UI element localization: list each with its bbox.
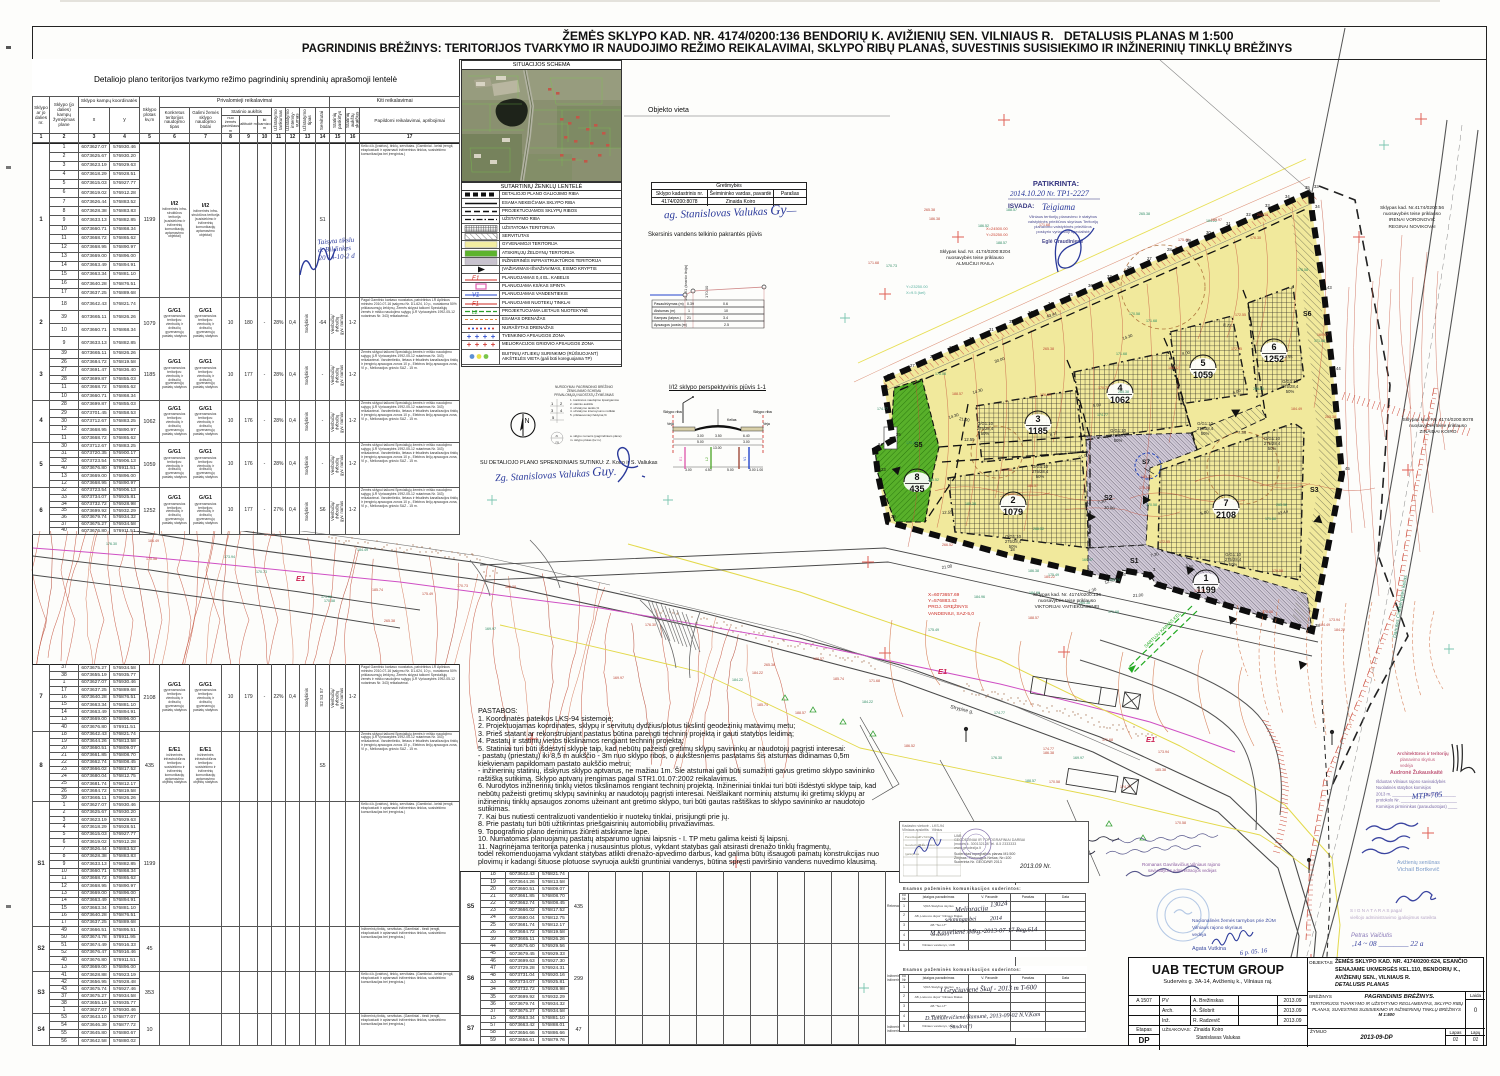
- svg-text:Kampas (laipsn.): Kampas (laipsn.): [654, 316, 681, 320]
- svg-text:a: a: [556, 433, 559, 438]
- svg-text:3.00 1.00: 3.00 1.00: [749, 468, 763, 472]
- svg-text:L2: L2: [705, 457, 709, 461]
- svg-text:2.5: 2.5: [724, 323, 729, 327]
- svg-text:Sklypo riba: Sklypo riba: [753, 410, 773, 414]
- svg-text:4: 4: [560, 408, 563, 413]
- svg-text:21: 21: [687, 316, 691, 320]
- svg-text:13.00: 13.00: [713, 446, 722, 450]
- svg-text:F1: F1: [472, 301, 479, 307]
- svg-text:3.50: 3.50: [715, 434, 722, 438]
- svg-text:E1: E1: [472, 276, 479, 282]
- svg-text:2: 2: [560, 401, 563, 406]
- svg-text:3.00: 3.00: [743, 440, 750, 444]
- svg-text:5.00: 5.00: [727, 468, 734, 472]
- svg-text:1: 1: [688, 309, 690, 313]
- svg-text:Pasaulėžymas (m): Pasaulėžymas (m): [654, 302, 684, 306]
- svg-text:5: 5: [552, 415, 555, 420]
- svg-text:Veja: Veja: [667, 422, 674, 426]
- svg-text:0.6: 0.6: [723, 302, 728, 306]
- svg-text:10: 10: [724, 309, 728, 313]
- svg-text:E1: E1: [679, 457, 683, 461]
- svg-text:Veja: Veja: [763, 422, 770, 426]
- svg-text:3.00: 3.00: [685, 468, 692, 472]
- svg-text:Apsaugos juosta (m): Apsaugos juosta (m): [654, 323, 687, 327]
- svg-text:0.39: 0.39: [687, 302, 694, 306]
- svg-text:3: 3: [551, 408, 554, 413]
- svg-text:N: N: [525, 418, 530, 425]
- svg-text:6.40: 6.40: [743, 434, 750, 438]
- svg-text:170.00: 170.00: [704, 285, 709, 298]
- svg-text:L2: L2: [472, 310, 478, 315]
- svg-text:Kelias: Kelias: [727, 418, 737, 422]
- svg-text:3.4: 3.4: [723, 316, 728, 320]
- svg-text:Atstumas (m): Atstumas (m): [654, 309, 675, 313]
- svg-text:5.00: 5.00: [697, 440, 704, 444]
- svg-text:3.00: 3.00: [697, 434, 704, 438]
- svg-text:Sklypo riba: Sklypo riba: [663, 410, 683, 414]
- svg-text:V1: V1: [472, 293, 479, 299]
- svg-text:1: 1: [551, 401, 554, 406]
- svg-text:V1: V1: [743, 457, 747, 461]
